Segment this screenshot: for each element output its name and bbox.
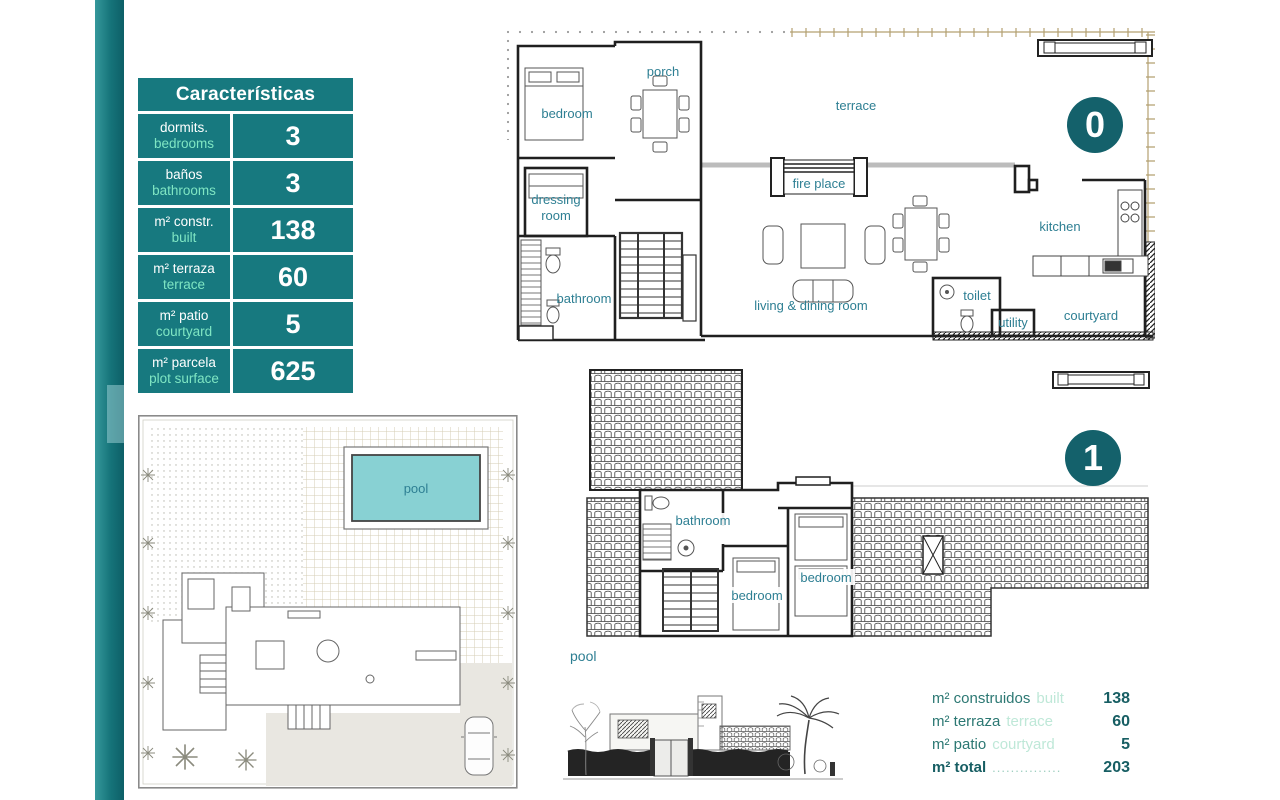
living-room-furniture xyxy=(763,224,885,302)
room-label-dressing-1: dressing xyxy=(531,192,580,207)
row-label: m² parcela plot surface xyxy=(138,349,230,393)
table-row-built: m² constr. built 138 xyxy=(138,208,353,252)
room-label-utility: utility xyxy=(998,315,1028,330)
label-es: m² terraza xyxy=(138,261,230,277)
floor0-badge: 0 xyxy=(1067,97,1123,153)
summary-total-dots: ............... xyxy=(992,760,1061,775)
label-en: bedrooms xyxy=(138,136,230,152)
summary-total-label: m² total xyxy=(932,759,986,776)
elevation-drawing xyxy=(558,682,848,787)
left-accent-bar-highlight xyxy=(107,385,124,443)
caracteristicas-table: Características dormits. bedrooms 3 baño… xyxy=(138,78,353,396)
row-label: m² patio courtyard xyxy=(138,302,230,346)
label-es: baños xyxy=(138,167,230,183)
summary-row-total: m² total ............... 203 xyxy=(932,759,1130,777)
summary-label-en: courtyard xyxy=(992,736,1055,753)
table-row-plot-surface: m² parcela plot surface 625 xyxy=(138,349,353,393)
room-label-toilet: toilet xyxy=(963,288,991,303)
row-label: baños bathrooms xyxy=(138,161,230,205)
room-label-living-dining: living & dining room xyxy=(754,298,867,313)
summary-value: 138 xyxy=(1103,690,1130,708)
row-value: 60 xyxy=(233,255,353,299)
porch-table-chairs xyxy=(631,76,689,152)
room-label-courtyard: courtyard xyxy=(1064,308,1118,323)
floor0-plan: porch bedroom terrace dressing room fire… xyxy=(505,28,1155,348)
row-value: 5 xyxy=(233,302,353,346)
dining-table-chairs xyxy=(893,196,949,272)
label-en: plot surface xyxy=(138,371,230,387)
summary-value: 5 xyxy=(1121,736,1130,754)
summary-value: 60 xyxy=(1112,713,1130,731)
bed-floor0 xyxy=(525,68,583,140)
table-title: Características xyxy=(138,78,353,111)
car xyxy=(461,717,497,775)
row-label: m² constr. built xyxy=(138,208,230,252)
room-label-bedroom: bedroom xyxy=(541,106,592,121)
room-label-bedroom-right: bedroom xyxy=(800,570,851,585)
floor1-pool-label: pool xyxy=(570,648,596,664)
label-en: courtyard xyxy=(138,324,230,340)
summary-label-en: terrace xyxy=(1006,713,1053,730)
summary-label-es: m² terraza xyxy=(932,713,1000,730)
room-label-kitchen: kitchen xyxy=(1039,219,1080,234)
plan-sheet: Características dormits. bedrooms 3 baño… xyxy=(0,0,1280,800)
label-es: m² patio xyxy=(138,308,230,324)
summary-total-value: 203 xyxy=(1103,759,1130,777)
label-es: m² parcela xyxy=(138,355,230,371)
site-plan: pool xyxy=(138,415,518,790)
driveway-entry xyxy=(460,663,512,715)
label-en: built xyxy=(138,230,230,246)
table-row-bathrooms: baños bathrooms 3 xyxy=(138,161,353,205)
row-label: m² terraza terrace xyxy=(138,255,230,299)
room-label-terrace: terrace xyxy=(836,98,876,113)
summary-label-en: built xyxy=(1036,690,1064,707)
summary-label-es: m² patio xyxy=(932,736,986,753)
row-label: dormits. bedrooms xyxy=(138,114,230,158)
summary-row-courtyard: m² patio courtyard 5 xyxy=(932,736,1130,754)
row-value: 625 xyxy=(233,349,353,393)
site-pool-label: pool xyxy=(404,481,429,496)
row-value: 138 xyxy=(233,208,353,252)
label-es: dormits. xyxy=(138,120,230,136)
floor1-plan: bathroom bedroom bedroom 1 xyxy=(583,366,1153,642)
room-label-dressing-2: room xyxy=(541,208,571,223)
summary-row-terrace: m² terraza terrace 60 xyxy=(932,713,1130,731)
label-en: bathrooms xyxy=(138,183,230,199)
table-row-courtyard: m² patio courtyard 5 xyxy=(138,302,353,346)
label-en: terrace xyxy=(138,277,230,293)
floor0-badge-number: 0 xyxy=(1085,104,1105,145)
row-value: 3 xyxy=(233,161,353,205)
area-summary: m² construidos built 138 m² terraza terr… xyxy=(932,690,1130,782)
summary-label-es: m² construidos xyxy=(932,690,1030,707)
table-row-terrace: m² terraza terrace 60 xyxy=(138,255,353,299)
table-row-bedrooms: dormits. bedrooms 3 xyxy=(138,114,353,158)
room-label-porch: porch xyxy=(647,64,680,79)
label-es: m² constr. xyxy=(138,214,230,230)
room-label-bedroom-left: bedroom xyxy=(731,588,782,603)
pool: pool xyxy=(344,447,488,529)
floor1-badge: 1 xyxy=(1065,430,1121,486)
terrace-window-floor1 xyxy=(1053,372,1149,388)
stairs-floor0 xyxy=(620,233,696,321)
row-value: 3 xyxy=(233,114,353,158)
plot-boundary-floor0 xyxy=(505,28,1155,242)
room-label-bathroom: bathroom xyxy=(557,291,612,306)
summary-row-built: m² construidos built 138 xyxy=(932,690,1130,708)
terrace-window xyxy=(1038,40,1152,56)
house-elevation xyxy=(610,696,790,750)
floor1-badge-number: 1 xyxy=(1083,437,1103,478)
room-label-bathroom-f1: bathroom xyxy=(676,513,731,528)
bathroom-fixtures-floor0 xyxy=(521,240,560,325)
room-label-fireplace: fire place xyxy=(793,176,846,191)
